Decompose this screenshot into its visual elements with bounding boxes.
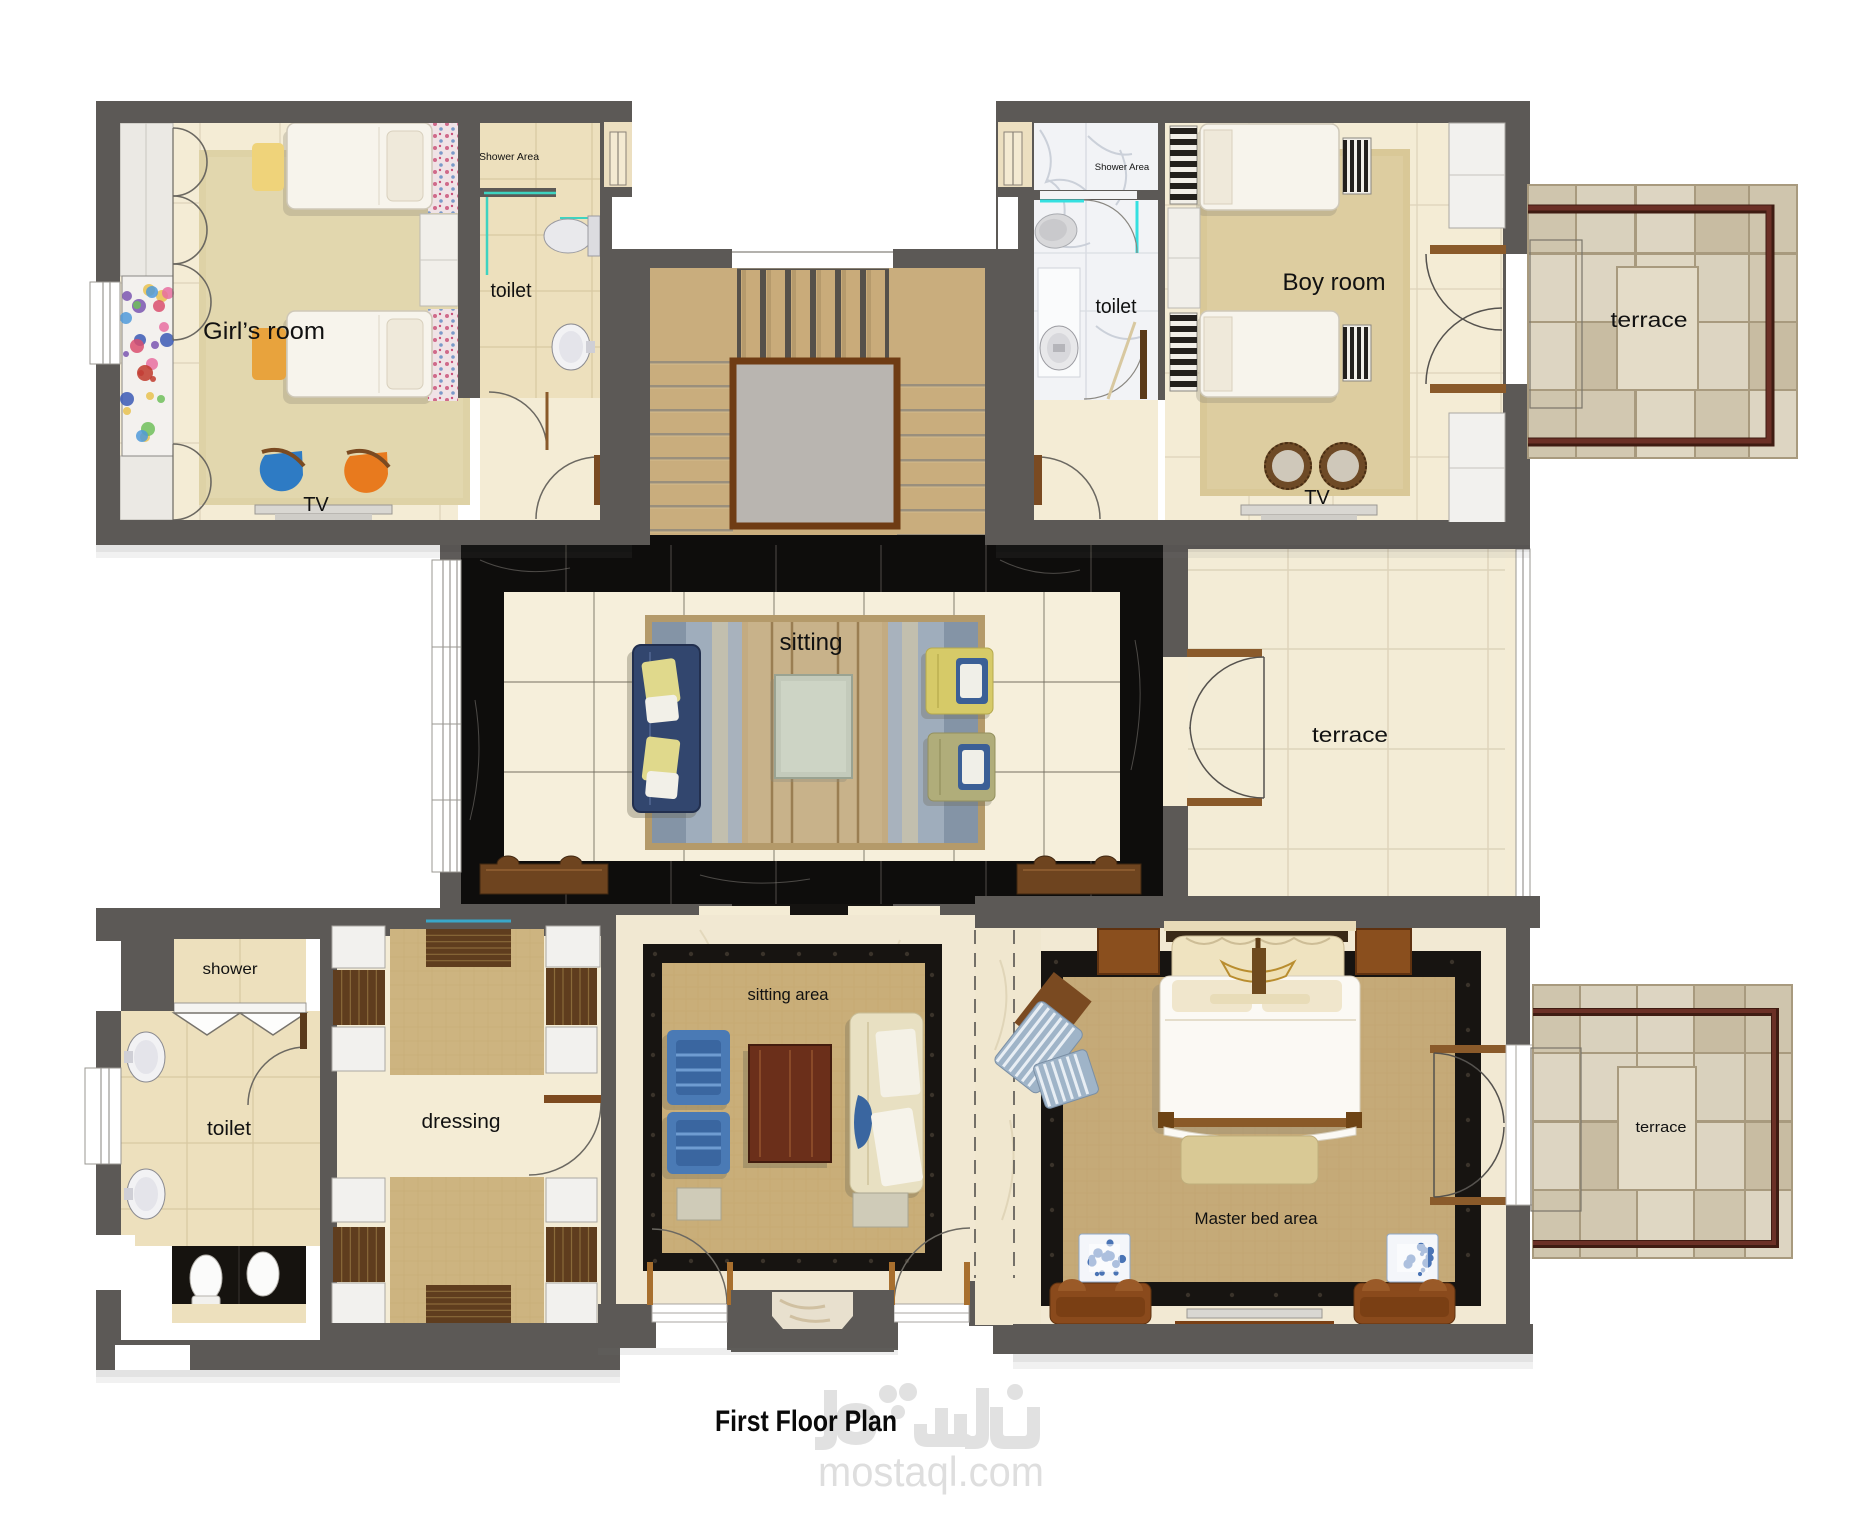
- svg-text:Master bed area: Master bed area: [1195, 1209, 1319, 1228]
- svg-text:dressing: dressing: [422, 1111, 501, 1133]
- svg-text:terrace: terrace: [1611, 309, 1688, 332]
- svg-text:toilet: toilet: [1096, 296, 1137, 318]
- svg-text:Shower Area: Shower Area: [479, 151, 539, 163]
- svg-text:sitting: sitting: [780, 629, 843, 656]
- svg-text:TV: TV: [303, 494, 329, 516]
- svg-text:First Floor Plan: First Floor Plan: [715, 1405, 897, 1438]
- svg-text:shower: shower: [203, 961, 259, 978]
- svg-text:Shower Area: Shower Area: [1095, 162, 1150, 173]
- svg-text:mostaql.com: mostaql.com: [818, 1448, 1044, 1495]
- svg-text:Girl’s room: Girl’s room: [203, 318, 325, 345]
- svg-text:toilet: toilet: [207, 1118, 251, 1140]
- svg-text:toilet: toilet: [491, 280, 532, 302]
- svg-text:sitting area: sitting area: [748, 985, 830, 1004]
- svg-text:Boy room: Boy room: [1283, 269, 1386, 296]
- svg-text:terrace: terrace: [1636, 1119, 1687, 1136]
- svg-text:TV: TV: [1304, 487, 1330, 509]
- svg-text:terrace: terrace: [1312, 724, 1388, 747]
